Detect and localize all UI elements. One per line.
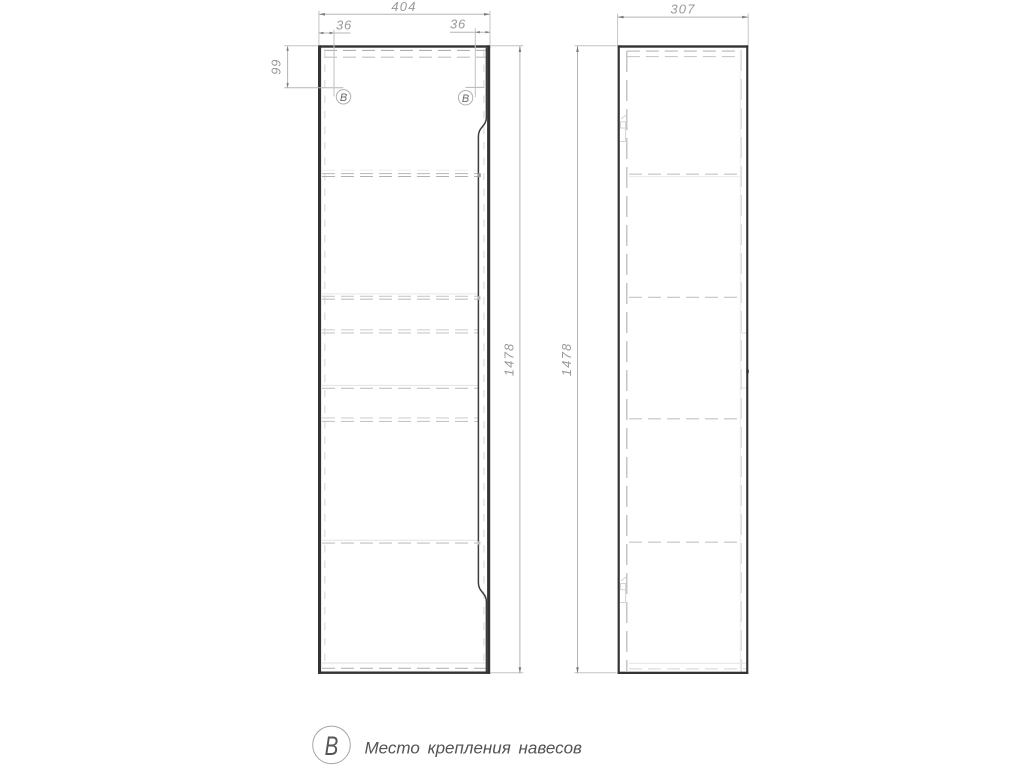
svg-text:307: 307	[670, 2, 695, 17]
svg-text:36: 36	[450, 17, 466, 32]
svg-text:Место крепления навесов: Место крепления навесов	[365, 739, 583, 758]
svg-text:99: 99	[269, 59, 284, 75]
svg-text:B: B	[325, 731, 339, 761]
svg-text:36: 36	[336, 17, 352, 32]
svg-text:1478: 1478	[502, 343, 517, 377]
svg-text:404: 404	[391, 0, 416, 14]
svg-text:B: B	[340, 92, 347, 104]
svg-text:1478: 1478	[559, 343, 574, 377]
svg-text:B: B	[462, 93, 469, 105]
